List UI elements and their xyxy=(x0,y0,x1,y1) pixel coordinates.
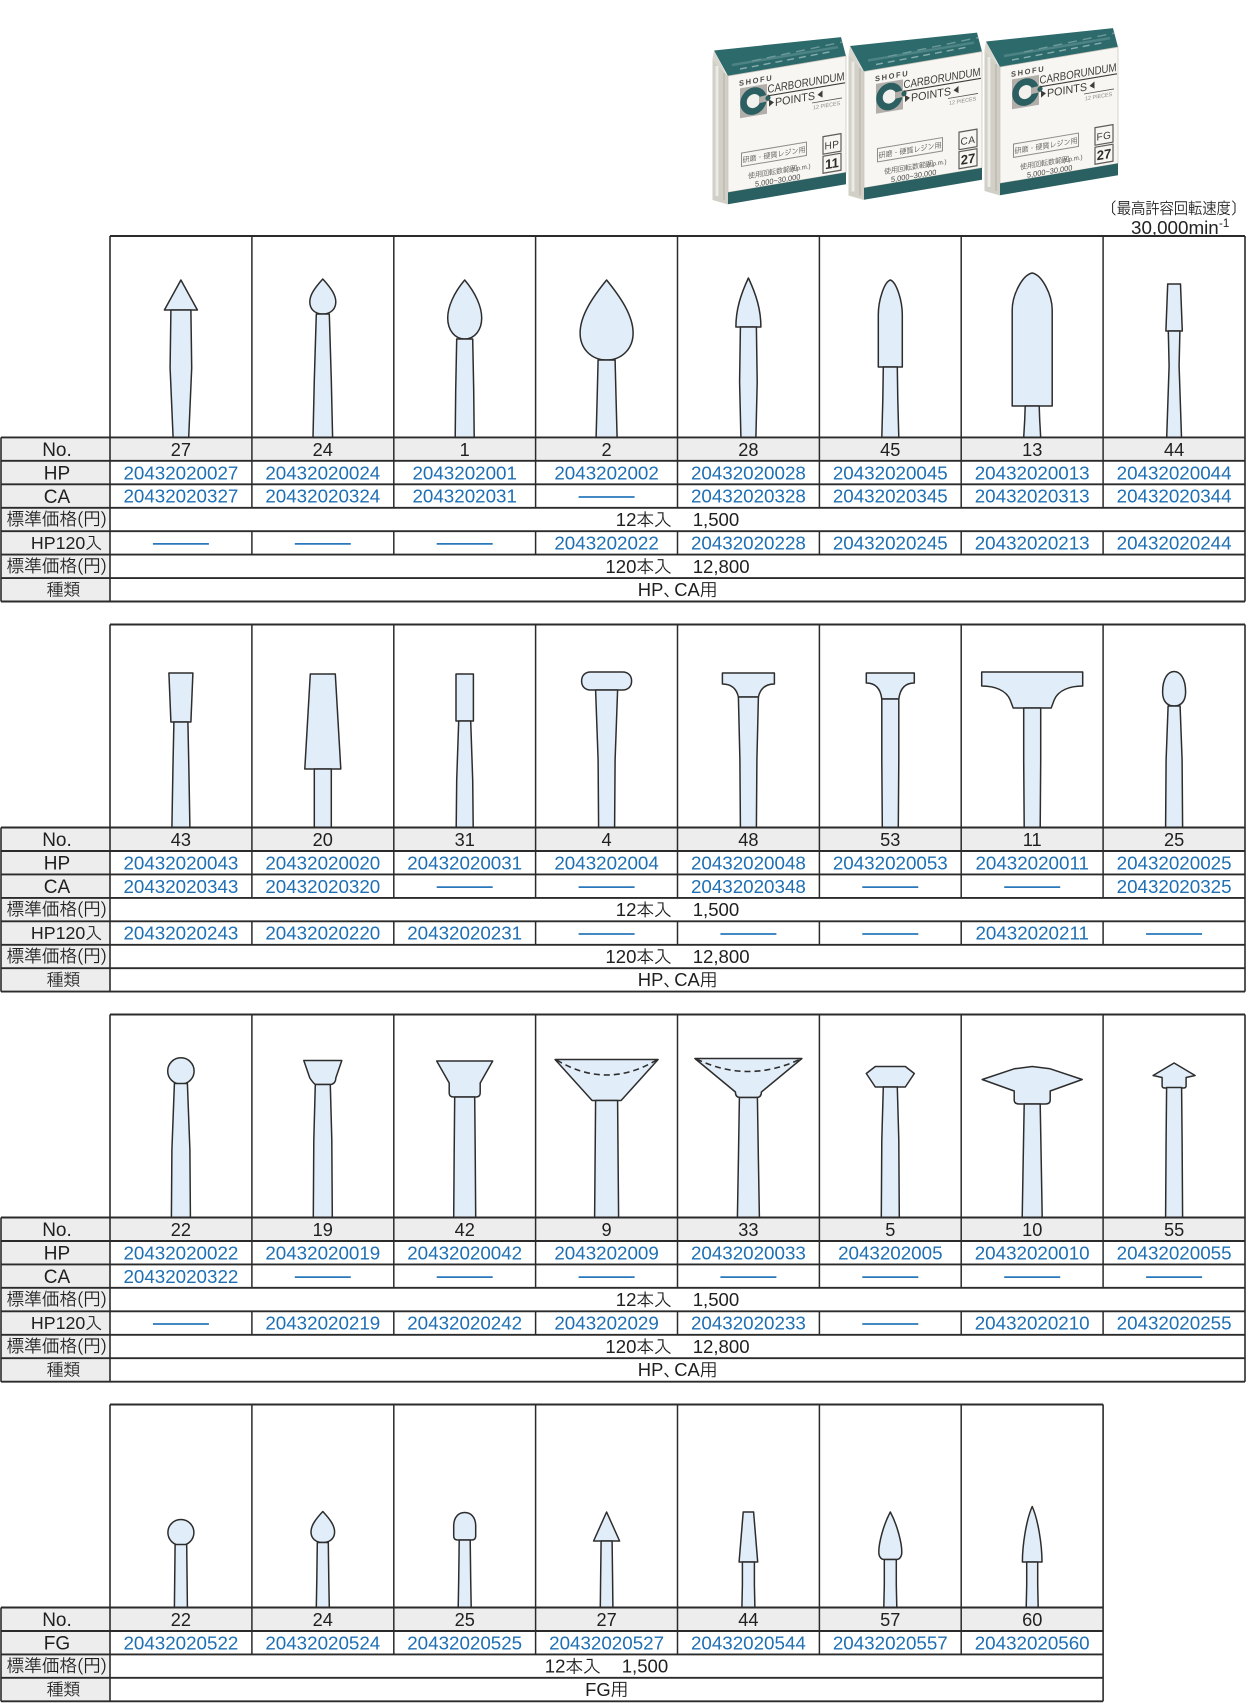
svg-text:No.: No. xyxy=(42,1220,72,1241)
svg-text:20432020243: 20432020243 xyxy=(123,923,238,944)
svg-text:57: 57 xyxy=(880,1610,900,1630)
svg-text:2043202022: 2043202022 xyxy=(554,533,658,554)
svg-text:HP: HP xyxy=(638,1359,664,1380)
svg-text:2043202002: 2043202002 xyxy=(554,462,658,483)
svg-text:20432020027: 20432020027 xyxy=(123,462,238,483)
svg-text:55: 55 xyxy=(1164,1220,1184,1240)
svg-text:1,500: 1,500 xyxy=(693,899,740,920)
svg-text:HP: HP xyxy=(638,969,664,990)
svg-text:20432020343: 20432020343 xyxy=(123,876,238,897)
svg-text:27: 27 xyxy=(1097,146,1111,164)
svg-text:24: 24 xyxy=(313,1610,333,1630)
svg-text:HP: HP xyxy=(44,464,70,485)
svg-text:20432020045: 20432020045 xyxy=(833,462,948,483)
svg-text:28: 28 xyxy=(738,440,758,460)
svg-text:19: 19 xyxy=(313,1220,333,1240)
svg-text:20432020010: 20432020010 xyxy=(975,1242,1090,1263)
svg-text:20432020244: 20432020244 xyxy=(1117,533,1232,554)
svg-text:20432020345: 20432020345 xyxy=(833,486,948,507)
svg-text:HP: HP xyxy=(638,579,664,600)
svg-text:44: 44 xyxy=(738,1610,758,1630)
svg-text:11: 11 xyxy=(825,155,839,173)
svg-text:27: 27 xyxy=(171,440,191,460)
svg-text:12: 12 xyxy=(616,899,637,920)
svg-text:20432020053: 20432020053 xyxy=(833,852,948,873)
svg-text:12,800: 12,800 xyxy=(693,1336,750,1357)
svg-text:2043202029: 2043202029 xyxy=(554,1313,658,1334)
svg-text:31: 31 xyxy=(455,830,475,850)
svg-text:12: 12 xyxy=(616,509,637,530)
svg-text:20432020210: 20432020210 xyxy=(975,1313,1090,1334)
svg-text:CA: CA xyxy=(674,969,700,990)
svg-text:HP: HP xyxy=(44,1244,70,1265)
svg-text:20432020048: 20432020048 xyxy=(691,852,806,873)
svg-text:No.: No. xyxy=(42,830,72,851)
svg-text:42: 42 xyxy=(455,1220,475,1240)
svg-text:HP: HP xyxy=(44,854,70,875)
svg-text:60: 60 xyxy=(1022,1610,1042,1630)
svg-text:20432020043: 20432020043 xyxy=(123,852,238,873)
svg-text:2043202005: 2043202005 xyxy=(838,1242,942,1263)
svg-text:27: 27 xyxy=(961,150,975,168)
svg-text:20432020557: 20432020557 xyxy=(833,1632,948,1653)
svg-text:2043202031: 2043202031 xyxy=(412,486,516,507)
svg-text:1,500: 1,500 xyxy=(622,1656,669,1677)
svg-text:20432020028: 20432020028 xyxy=(691,462,806,483)
svg-text:20432020255: 20432020255 xyxy=(1117,1313,1232,1334)
svg-text:22: 22 xyxy=(171,1220,191,1240)
svg-text:CA: CA xyxy=(674,579,700,600)
svg-text:4: 4 xyxy=(602,830,612,850)
svg-text:20432020524: 20432020524 xyxy=(265,1632,380,1653)
svg-text:20432020313: 20432020313 xyxy=(975,486,1090,507)
svg-text:2043202009: 2043202009 xyxy=(554,1242,658,1263)
svg-text:20432020033: 20432020033 xyxy=(691,1242,806,1263)
svg-text:120: 120 xyxy=(605,946,636,967)
svg-text:20432020325: 20432020325 xyxy=(1117,876,1232,897)
svg-text:HP120: HP120 xyxy=(31,533,85,553)
svg-text:20432020044: 20432020044 xyxy=(1117,462,1232,483)
svg-text:45: 45 xyxy=(880,440,900,460)
svg-text:20432020019: 20432020019 xyxy=(265,1242,380,1263)
svg-text:20432020560: 20432020560 xyxy=(975,1632,1090,1653)
svg-text:20432020544: 20432020544 xyxy=(691,1632,806,1653)
svg-text:20432020320: 20432020320 xyxy=(265,876,380,897)
svg-text:24: 24 xyxy=(313,440,333,460)
svg-text:33: 33 xyxy=(738,1220,758,1240)
svg-text:25: 25 xyxy=(455,1610,475,1630)
svg-text:12,800: 12,800 xyxy=(693,946,750,967)
svg-text:43: 43 xyxy=(171,830,191,850)
svg-text:25: 25 xyxy=(1164,830,1184,850)
svg-text:30,000min: 30,000min xyxy=(1131,217,1219,238)
svg-text:20432020020: 20432020020 xyxy=(265,852,380,873)
svg-text:22: 22 xyxy=(171,1610,191,1630)
svg-text:2: 2 xyxy=(602,440,612,460)
svg-text:20432020242: 20432020242 xyxy=(407,1313,522,1334)
svg-text:48: 48 xyxy=(738,830,758,850)
svg-text:5: 5 xyxy=(885,1220,895,1240)
svg-text:20432020042: 20432020042 xyxy=(407,1242,522,1263)
svg-text:20432020245: 20432020245 xyxy=(833,533,948,554)
svg-text:20432020024: 20432020024 xyxy=(265,462,380,483)
svg-text:CA: CA xyxy=(44,877,71,898)
svg-text:27: 27 xyxy=(596,1610,616,1630)
svg-text:20432020527: 20432020527 xyxy=(549,1632,664,1653)
svg-text:10: 10 xyxy=(1022,1220,1042,1240)
svg-text:20432020055: 20432020055 xyxy=(1117,1242,1232,1263)
svg-text:20432020025: 20432020025 xyxy=(1117,852,1232,873)
svg-text:20432020022: 20432020022 xyxy=(123,1242,238,1263)
svg-text:9: 9 xyxy=(602,1220,612,1240)
svg-text:12,800: 12,800 xyxy=(693,556,750,577)
svg-text:120: 120 xyxy=(605,556,636,577)
svg-text:FG: FG xyxy=(585,1679,611,1700)
svg-text:20432020211: 20432020211 xyxy=(975,923,1089,944)
svg-text:20432020220: 20432020220 xyxy=(265,923,380,944)
svg-text:1,500: 1,500 xyxy=(693,509,740,530)
svg-text:1,500: 1,500 xyxy=(693,1289,740,1310)
svg-text:FG: FG xyxy=(44,1634,70,1655)
svg-text:HP120: HP120 xyxy=(31,923,85,943)
svg-text:CA: CA xyxy=(44,1267,71,1288)
svg-text:20432020525: 20432020525 xyxy=(407,1632,522,1653)
svg-text:20432020011: 20432020011 xyxy=(975,852,1089,873)
svg-text:-1: -1 xyxy=(1219,218,1229,230)
svg-text:2043202004: 2043202004 xyxy=(554,852,658,873)
svg-text:20432020348: 20432020348 xyxy=(691,876,806,897)
svg-text:44: 44 xyxy=(1164,440,1184,460)
svg-text:20432020213: 20432020213 xyxy=(975,533,1090,554)
svg-text:HP120: HP120 xyxy=(31,1313,85,1333)
svg-text:20432020328: 20432020328 xyxy=(691,486,806,507)
svg-text:20432020231: 20432020231 xyxy=(407,923,522,944)
svg-text:CA: CA xyxy=(44,487,71,508)
svg-text:No.: No. xyxy=(42,1610,72,1631)
svg-text:20432020324: 20432020324 xyxy=(265,486,380,507)
svg-text:CA: CA xyxy=(674,1359,700,1380)
svg-text:20432020344: 20432020344 xyxy=(1117,486,1232,507)
svg-text:12: 12 xyxy=(616,1289,637,1310)
svg-text:53: 53 xyxy=(880,830,900,850)
svg-text:20432020322: 20432020322 xyxy=(123,1266,238,1287)
svg-text:20432020013: 20432020013 xyxy=(975,462,1090,483)
svg-text:20432020219: 20432020219 xyxy=(265,1313,380,1334)
svg-text:20432020031: 20432020031 xyxy=(407,852,522,873)
svg-text:20432020327: 20432020327 xyxy=(123,486,238,507)
svg-text:12: 12 xyxy=(545,1656,566,1677)
svg-text:2043202001: 2043202001 xyxy=(412,462,516,483)
svg-text:1: 1 xyxy=(460,440,470,460)
svg-text:No.: No. xyxy=(42,440,72,461)
svg-text:20432020522: 20432020522 xyxy=(123,1632,238,1653)
svg-text:13: 13 xyxy=(1022,440,1042,460)
svg-text:20432020228: 20432020228 xyxy=(691,533,806,554)
svg-text:20432020233: 20432020233 xyxy=(691,1313,806,1334)
svg-text:120: 120 xyxy=(605,1336,636,1357)
svg-text:11: 11 xyxy=(1023,830,1042,850)
svg-text:20: 20 xyxy=(313,830,333,850)
